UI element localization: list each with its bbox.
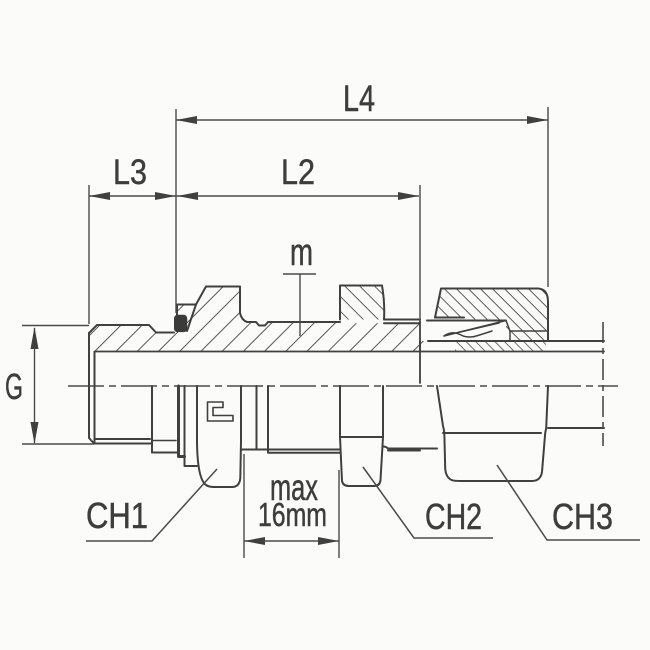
svg-text:CH3: CH3 — [552, 496, 613, 537]
svg-text:CH2: CH2 — [425, 496, 482, 537]
svg-text:L3: L3 — [113, 153, 147, 192]
svg-text:L4: L4 — [343, 78, 375, 119]
svg-text:G: G — [5, 366, 23, 407]
svg-text:L2: L2 — [281, 153, 315, 192]
svg-text:CH1: CH1 — [86, 495, 148, 536]
svg-text:16mm: 16mm — [258, 496, 327, 533]
svg-text:m: m — [290, 232, 313, 274]
